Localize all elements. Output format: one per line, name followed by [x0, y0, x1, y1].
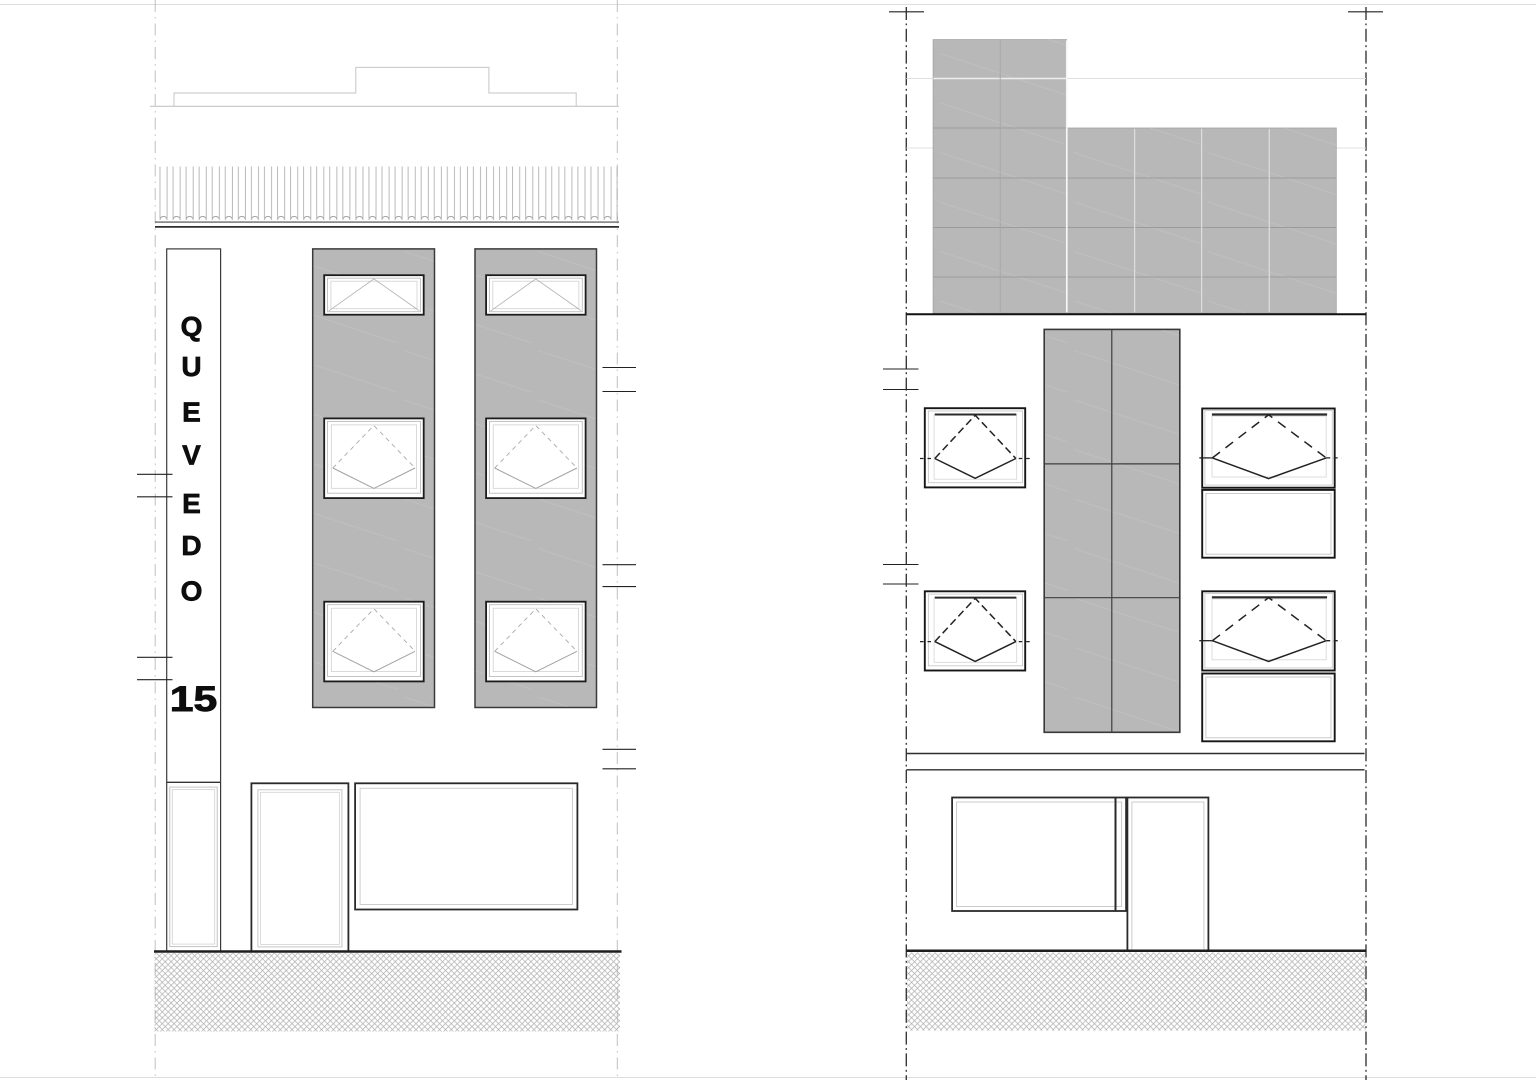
svg-text:Q: Q	[181, 311, 203, 342]
svg-text:E: E	[182, 396, 201, 427]
svg-text:V: V	[182, 439, 201, 470]
svg-text:E: E	[182, 488, 201, 519]
svg-text:U: U	[181, 351, 201, 382]
svg-text:O: O	[181, 575, 203, 606]
svg-text:D: D	[181, 530, 201, 561]
svg-text:15: 15	[170, 680, 218, 719]
